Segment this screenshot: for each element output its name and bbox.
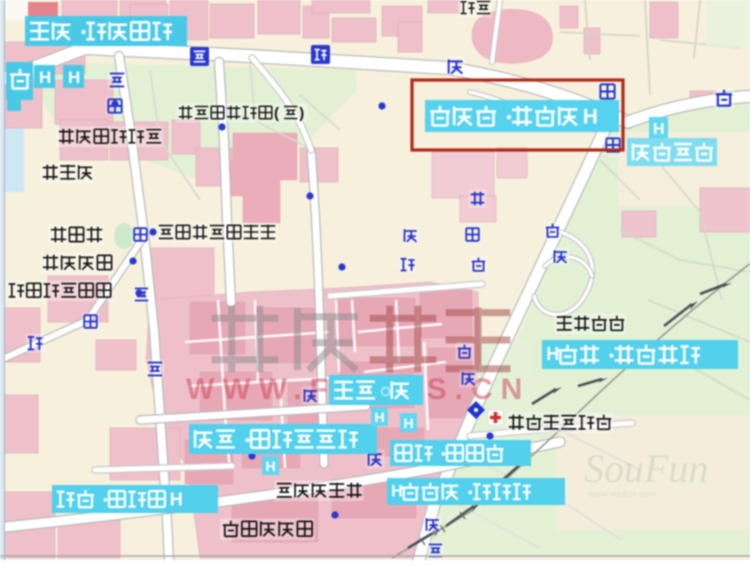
- svg-text:www.soufun.com: www.soufun.com: [587, 489, 656, 499]
- svg-text:SouFun: SouFun: [584, 446, 708, 491]
- svg-text:○: ○: [380, 380, 392, 402]
- svg-text:H: H: [375, 409, 385, 425]
- svg-text:H: H: [170, 490, 183, 510]
- svg-text:H: H: [653, 121, 665, 138]
- svg-text:H: H: [546, 344, 559, 364]
- svg-text:(: (: [274, 105, 279, 122]
- svg-text:H: H: [39, 68, 51, 87]
- svg-text:H: H: [404, 415, 414, 431]
- svg-text:H: H: [68, 68, 80, 87]
- svg-text:): ): [299, 105, 304, 122]
- svg-text:H: H: [391, 483, 403, 501]
- svg-text:H: H: [266, 458, 276, 474]
- svg-text:H: H: [583, 106, 598, 129]
